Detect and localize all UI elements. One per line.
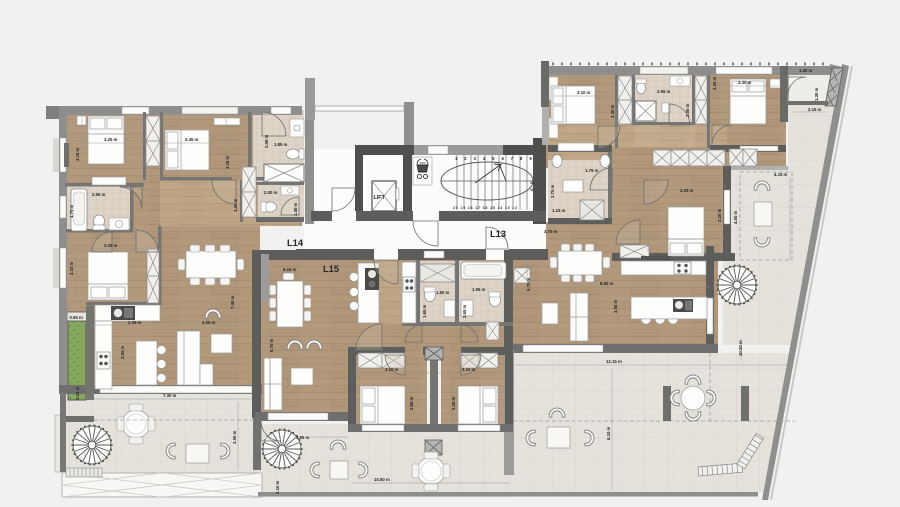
svg-text:3.60 m: 3.60 m [409, 396, 414, 410]
svg-text:4.00 m: 4.00 m [733, 210, 738, 224]
svg-text:2.06 m: 2.06 m [264, 134, 269, 148]
svg-text:1.95 m: 1.95 m [472, 287, 486, 292]
svg-text:10.20 m: 10.20 m [738, 340, 743, 356]
svg-text:2.75 m: 2.75 m [550, 184, 555, 198]
svg-text:1.85 m: 1.85 m [274, 142, 288, 147]
svg-text:10: 10 [530, 181, 534, 185]
svg-text:2.65 m: 2.65 m [462, 304, 467, 318]
svg-text:10.80 m: 10.80 m [374, 477, 390, 482]
svg-text:1.65 m: 1.65 m [422, 304, 427, 318]
svg-text:1.75 m: 1.75 m [69, 204, 74, 218]
svg-text:1.30 m: 1.30 m [814, 87, 819, 101]
svg-text:LIFT: LIFT [374, 195, 386, 201]
svg-text:3.50 m: 3.50 m [613, 299, 618, 313]
svg-text:8.60 m: 8.60 m [600, 281, 614, 286]
svg-text:3.30 m: 3.30 m [738, 80, 752, 85]
svg-text:0.80 m: 0.80 m [70, 315, 84, 320]
svg-text:4.05 m: 4.05 m [202, 320, 216, 325]
svg-text:12.15 m: 12.15 m [606, 359, 622, 364]
svg-text:7.40 m: 7.40 m [230, 295, 235, 309]
svg-text:3.10 m: 3.10 m [275, 480, 280, 494]
svg-text:3.25 m: 3.25 m [680, 188, 694, 193]
svg-text:3.10 m: 3.10 m [225, 155, 230, 169]
svg-text:7.30 m: 7.30 m [163, 393, 177, 398]
svg-text:3.25 m: 3.25 m [104, 137, 118, 142]
svg-text:3.55 m: 3.55 m [232, 430, 237, 444]
svg-text:3.30 m: 3.30 m [610, 104, 615, 118]
svg-text:2.00 m: 2.00 m [685, 103, 690, 117]
svg-text:3.10 m: 3.10 m [69, 261, 74, 275]
svg-text:1.40 m: 1.40 m [799, 68, 813, 73]
svg-text:1.75 m: 1.75 m [585, 168, 599, 173]
svg-text:3.25 m: 3.25 m [104, 243, 118, 248]
svg-text:3.10 m: 3.10 m [75, 147, 80, 161]
svg-text:3.20 m: 3.20 m [451, 396, 456, 410]
svg-text:1.60 m: 1.60 m [436, 290, 450, 295]
svg-text:L15: L15 [323, 264, 339, 274]
svg-text:6.75 m: 6.75 m [269, 338, 274, 352]
svg-text:3.85 m: 3.85 m [296, 435, 310, 440]
svg-text:3.45 m: 3.45 m [185, 137, 199, 142]
svg-text:3.10 m: 3.10 m [577, 90, 591, 95]
svg-text:1.40 m: 1.40 m [233, 198, 238, 212]
svg-text:5.70 m: 5.70 m [526, 277, 531, 291]
svg-text:3.10 m: 3.10 m [385, 367, 399, 372]
svg-text:3.10 m: 3.10 m [462, 367, 476, 372]
svg-text:2.15 m: 2.15 m [808, 107, 822, 112]
svg-text:L13: L13 [490, 229, 506, 239]
svg-text:11: 11 [530, 188, 534, 192]
svg-text:L14: L14 [287, 238, 304, 248]
svg-text:4.15 m: 4.15 m [774, 172, 788, 177]
svg-text:3.25 m: 3.25 m [712, 76, 717, 90]
svg-text:1 2 3 4 5 6 7 8 9: 1 2 3 4 5 6 7 8 9 [455, 156, 535, 161]
svg-text:1.40 m: 1.40 m [293, 202, 298, 216]
svg-text:2.55 m: 2.55 m [92, 192, 106, 197]
svg-text:2.55 m: 2.55 m [657, 89, 671, 94]
svg-text:3.75 m: 3.75 m [544, 229, 558, 234]
svg-text:6.15 m: 6.15 m [283, 267, 297, 272]
svg-text:7.25 m: 7.25 m [75, 386, 80, 400]
svg-text:2.00 m: 2.00 m [264, 190, 278, 195]
svg-text:20 19 18 17 16 15 14 13 12: 20 19 18 17 16 15 14 13 12 [453, 206, 518, 210]
svg-text:2.35 m: 2.35 m [128, 320, 142, 325]
svg-text:6.10 m: 6.10 m [606, 426, 611, 440]
svg-text:1.15 m: 1.15 m [552, 208, 566, 213]
svg-text:3.25 m: 3.25 m [717, 208, 722, 222]
svg-text:3.05 m: 3.05 m [120, 345, 125, 359]
